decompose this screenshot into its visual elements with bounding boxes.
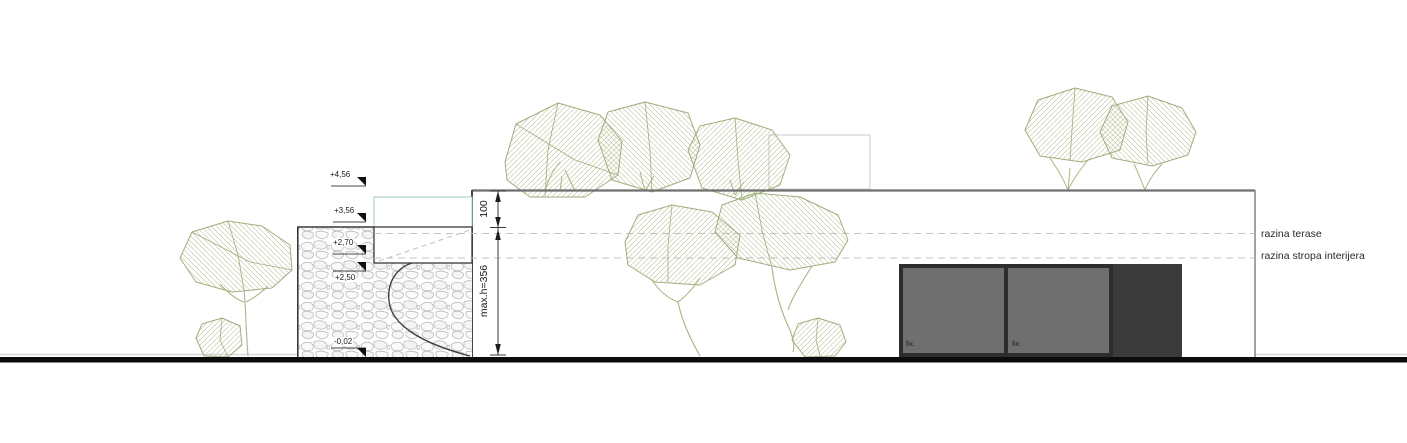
- level-label-270: +2,70: [332, 238, 354, 247]
- level-label-250: +2,50: [334, 273, 356, 282]
- glass-pane-2: [1008, 268, 1109, 353]
- dimension-label-max-height: max.h=356: [478, 265, 490, 317]
- tree-right-back-2: [1100, 96, 1196, 190]
- window-label-fix-2: fix.: [1012, 341, 1021, 348]
- dimension-label-roof-band: 100: [478, 200, 490, 218]
- bush-left: [196, 318, 242, 357]
- level-marker-icon: [357, 177, 366, 186]
- level-marker-icon: [357, 213, 366, 222]
- bush-center: [792, 318, 846, 357]
- level-label-356: +3,56: [333, 206, 355, 215]
- window-label-fix-1: fix.: [906, 341, 915, 348]
- level-label-minus-002: -0,02: [333, 337, 353, 346]
- entrance-dark-panel: [1113, 264, 1182, 357]
- terrace-railing-outline: [374, 197, 472, 227]
- ground-line: [0, 357, 1407, 363]
- fixed-glazing: [899, 264, 1182, 357]
- tree-center-back-2: [598, 102, 700, 192]
- elevation-drawing-canvas: +4,56 +3,56 +2,70 +2,50 -0,02 100 max.h=…: [0, 0, 1407, 443]
- annotation-terrace-level: razina terase: [1261, 228, 1322, 240]
- level-label-456: +4,56: [329, 170, 351, 179]
- elevation-linework: [0, 0, 1407, 443]
- annotation-ceiling-level: razina stropa interijera: [1261, 250, 1365, 262]
- glass-pane-1: [903, 268, 1004, 353]
